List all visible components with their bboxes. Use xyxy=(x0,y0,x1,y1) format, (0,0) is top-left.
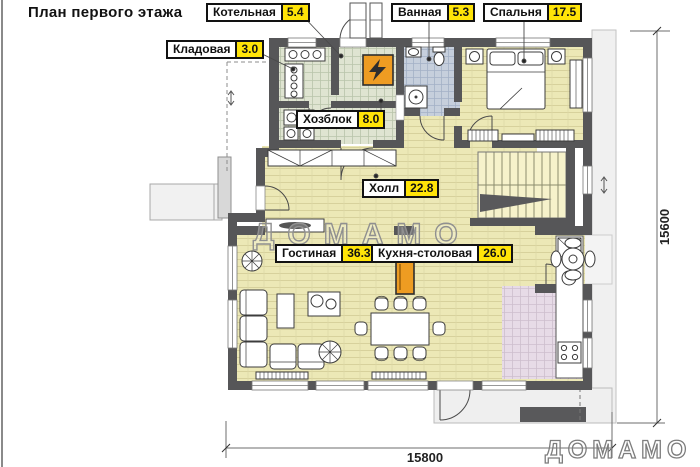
room-area: 22.8 xyxy=(404,181,437,196)
room-name: Холл xyxy=(364,181,404,196)
room-area: 26.0 xyxy=(477,246,510,261)
room-label-bedroom: Спальня 17.5 xyxy=(483,3,582,22)
dimension-bottom: 15800 xyxy=(385,450,465,465)
room-label-bathroom: Ванная 5.3 xyxy=(391,3,475,22)
room-name: Спальня xyxy=(485,5,547,20)
room-area: 17.5 xyxy=(547,5,580,20)
room-label-storage: Кладовая 3.0 xyxy=(166,40,264,59)
room-area: 5.4 xyxy=(281,5,308,20)
room-area: 3.0 xyxy=(235,42,262,57)
room-name: Кухня-столовая xyxy=(373,246,477,261)
chimney-shafts xyxy=(350,3,382,38)
swing-arrow-icon xyxy=(228,91,234,105)
bed-icon xyxy=(487,49,545,109)
round-rug-icon xyxy=(319,341,341,363)
terrace-door xyxy=(437,381,473,390)
coffee-table-icon xyxy=(277,294,294,328)
room-area: 36.3 xyxy=(341,246,374,261)
floor-plan-page: ДОМАМО ДОМАМО План первого этажа Котельн… xyxy=(0,0,700,467)
boiler-exterior-door xyxy=(340,38,366,47)
room-name: Хозблок xyxy=(298,112,357,127)
room-label-boiler: Котельная 5.4 xyxy=(206,3,310,22)
tv-cabinet-icon xyxy=(308,292,340,316)
room-label-utility: Хозблок 8.0 xyxy=(296,110,385,129)
entry-porch xyxy=(150,184,222,220)
toilet-icon xyxy=(433,47,445,66)
entry-door xyxy=(256,186,265,210)
sink-icon xyxy=(406,47,421,57)
room-label-hall: Холл 22.8 xyxy=(362,179,439,198)
dining-table-icon xyxy=(371,313,429,345)
porch-pier xyxy=(218,157,231,218)
terrace-step xyxy=(520,407,586,422)
corridor-floor xyxy=(404,116,460,146)
watermark-bottom-right: ДОМАМО xyxy=(545,436,691,465)
right-pavement xyxy=(592,30,616,423)
boiler-icon xyxy=(363,55,393,85)
room-area: 8.0 xyxy=(357,112,384,127)
fan-decor-icon xyxy=(242,251,262,271)
fireplace-icon xyxy=(396,260,414,294)
room-name: Гостиная xyxy=(277,246,341,261)
room-name: Котельная xyxy=(208,5,281,20)
room-name: Ванная xyxy=(393,5,447,20)
shower-icon xyxy=(405,86,427,108)
room-area: 5.3 xyxy=(447,5,474,20)
room-name: Кладовая xyxy=(168,42,235,57)
dimension-right: 15600 xyxy=(657,195,673,259)
hall-wardrobe-icon xyxy=(268,150,396,166)
room-label-kitchen-dining: Кухня-столовая 26.0 xyxy=(371,244,513,263)
room-label-living: Гостиная 36.3 xyxy=(275,244,377,263)
stove-icon xyxy=(558,342,581,363)
page-title: План первого этажа xyxy=(28,4,182,21)
